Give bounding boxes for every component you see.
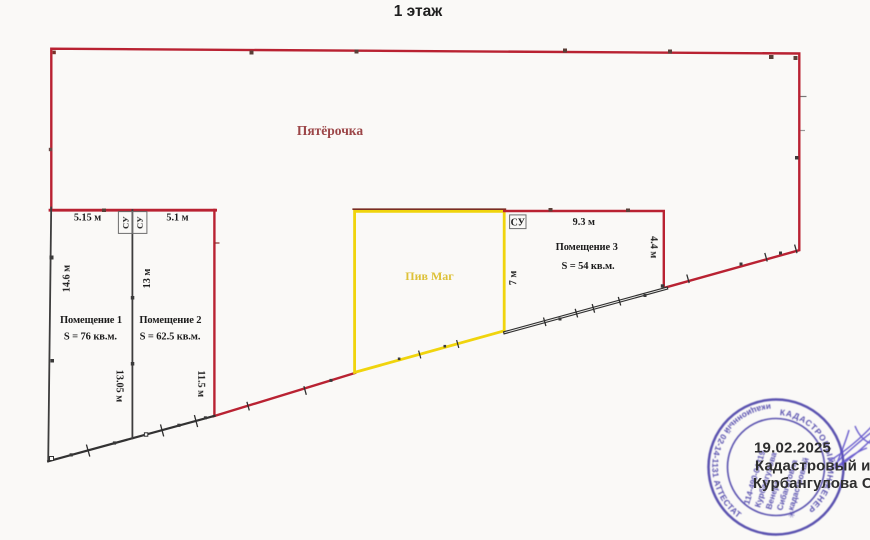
svg-text:7 м: 7 м: [508, 271, 519, 286]
svg-text:Помещение 3: Помещение 3: [556, 242, 618, 253]
svg-text:Помещение 1: Помещение 1: [60, 315, 122, 326]
svg-text:4.4 м: 4.4 м: [648, 236, 659, 258]
svg-text:Курбангулова Си: Курбангулова Си: [753, 475, 870, 492]
svg-text:13 м: 13 м: [142, 269, 153, 289]
svg-text:СУ: СУ: [511, 217, 526, 228]
svg-text:Пив Маг: Пив Маг: [405, 269, 454, 283]
svg-text:СУ: СУ: [121, 216, 131, 229]
svg-text:11.5 м: 11.5 м: [195, 370, 206, 397]
svg-text:19.02.2025: 19.02.2025: [754, 440, 831, 457]
svg-text:Помещение 2: Помещение 2: [139, 315, 201, 326]
svg-text:13.05 м: 13.05 м: [114, 370, 125, 402]
svg-text:Пятёрочка: Пятёрочка: [297, 123, 364, 138]
svg-text:СУ: СУ: [135, 216, 145, 229]
svg-text:S = 76 кв.м.: S = 76 кв.м.: [64, 331, 118, 342]
svg-text:Кадастровый инж: Кадастровый инж: [755, 457, 870, 474]
svg-text:1 этаж: 1 этаж: [394, 3, 443, 20]
svg-text:S = 62.5 кв.м.: S = 62.5 кв.м.: [140, 331, 201, 342]
svg-text:S = 54 кв.м.: S = 54 кв.м.: [561, 261, 615, 272]
svg-text:5.15 м: 5.15 м: [74, 213, 101, 224]
svg-text:14.6 м: 14.6 м: [62, 265, 73, 292]
svg-text:9.3 м: 9.3 м: [573, 217, 595, 228]
svg-text:5.1 м: 5.1 м: [166, 213, 188, 224]
